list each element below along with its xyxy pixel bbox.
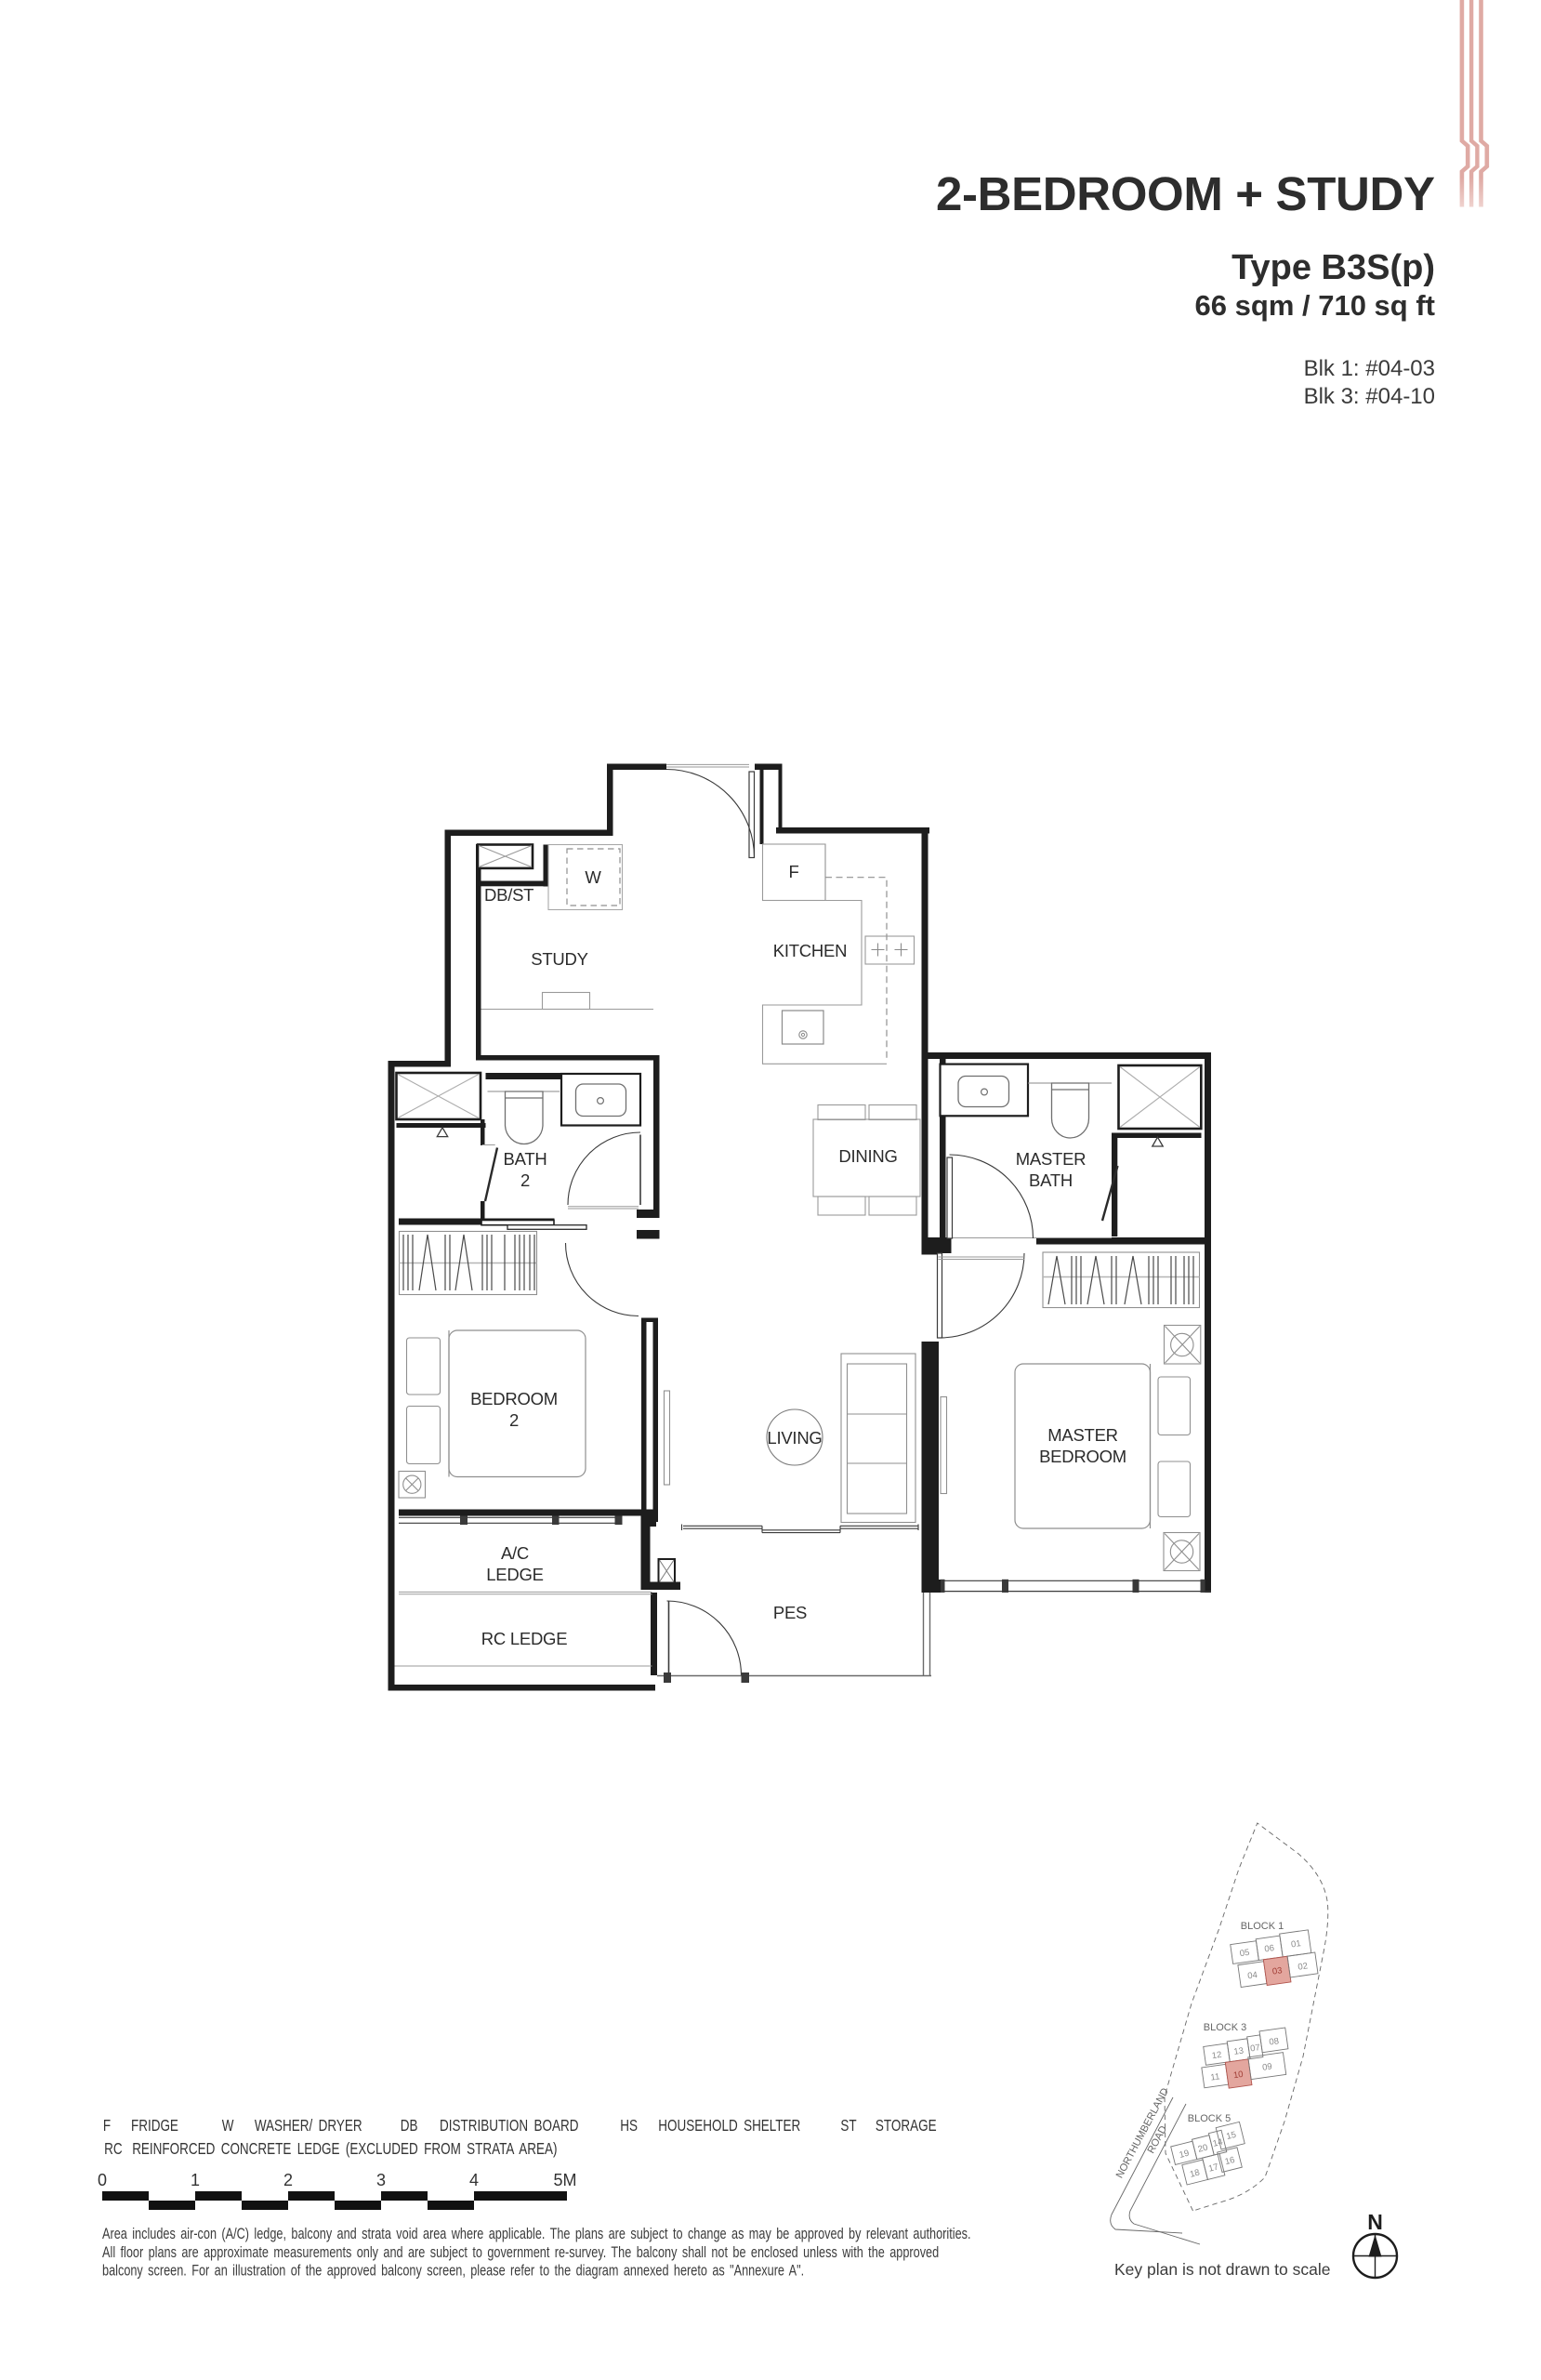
svg-text:2: 2	[509, 1410, 519, 1430]
svg-text:13: 13	[1233, 2046, 1245, 2057]
svg-text:W: W	[222, 2117, 234, 2135]
svg-text:Type B3S(p): Type B3S(p)	[1231, 248, 1435, 287]
svg-text:RC LEDGE: RC LEDGE	[481, 1629, 568, 1648]
svg-text:07: 07	[1250, 2043, 1261, 2054]
svg-text:BEDROOM: BEDROOM	[1039, 1447, 1126, 1466]
svg-text:BLOCK 5: BLOCK 5	[1188, 2113, 1231, 2124]
svg-text:STUDY: STUDY	[531, 949, 587, 969]
svg-text:1: 1	[191, 2171, 200, 2189]
svg-text:PES: PES	[773, 1603, 807, 1622]
svg-text:12: 12	[1211, 2050, 1222, 2061]
svg-text:2: 2	[520, 1170, 530, 1190]
svg-text:08: 08	[1269, 2036, 1280, 2047]
svg-text:LIVING: LIVING	[767, 1428, 822, 1448]
svg-text:DISTRIBUTION BOARD: DISTRIBUTION BOARD	[440, 2117, 578, 2135]
svg-text:DINING: DINING	[838, 1146, 897, 1166]
svg-text:03: 03	[1271, 1965, 1283, 1977]
svg-text:REINFORCED CONCRETE LEDGE (EXC: REINFORCED CONCRETE LEDGE (EXCLUDED FROM…	[132, 2140, 557, 2158]
svg-text:DB/ST: DB/ST	[484, 885, 533, 905]
svg-text:MASTER: MASTER	[1016, 1149, 1087, 1169]
svg-text:FRIDGE: FRIDGE	[131, 2117, 178, 2135]
svg-text:BATH: BATH	[1029, 1170, 1073, 1190]
svg-text:BLOCK 3: BLOCK 3	[1204, 2022, 1246, 2033]
svg-text:RC: RC	[104, 2140, 122, 2158]
svg-text:MASTER: MASTER	[1047, 1425, 1118, 1445]
svg-text:4: 4	[469, 2171, 479, 2189]
svg-text:05: 05	[1239, 1948, 1250, 1959]
svg-text:04: 04	[1247, 1970, 1258, 1981]
svg-text:3: 3	[376, 2171, 386, 2189]
svg-text:Area includes air-con (A/C) le: Area includes air-con (A/C) ledge, balco…	[102, 2225, 970, 2242]
svg-text:F: F	[788, 862, 798, 881]
svg-text:5M: 5M	[553, 2171, 576, 2189]
svg-text:66 sqm / 710 sq ft: 66 sqm / 710 sq ft	[1195, 289, 1435, 322]
svg-text:KITCHEN: KITCHEN	[773, 941, 847, 960]
svg-text:09: 09	[1261, 2061, 1272, 2072]
svg-text:HS: HS	[620, 2117, 638, 2135]
svg-text:ST: ST	[840, 2117, 856, 2135]
svg-text:BATH: BATH	[504, 1149, 547, 1169]
svg-text:WASHER/ DRYER: WASHER/ DRYER	[255, 2117, 362, 2135]
svg-text:W: W	[585, 867, 601, 887]
svg-text:A/C: A/C	[501, 1543, 529, 1563]
svg-text:Blk 1: #04-03: Blk 1: #04-03	[1304, 356, 1435, 381]
svg-text:BLOCK 1: BLOCK 1	[1241, 1921, 1284, 1932]
svg-text:HOUSEHOLD SHELTER: HOUSEHOLD SHELTER	[658, 2117, 800, 2135]
svg-text:STORAGE: STORAGE	[876, 2117, 937, 2135]
svg-text:Key plan is not drawn to scale: Key plan is not drawn to scale	[1114, 2260, 1331, 2279]
svg-text:N: N	[1367, 2210, 1383, 2234]
svg-text:BEDROOM: BEDROOM	[470, 1389, 558, 1408]
svg-text:2: 2	[283, 2171, 293, 2189]
svg-text:11: 11	[1210, 2071, 1220, 2082]
svg-text:LEDGE: LEDGE	[486, 1565, 543, 1584]
svg-text:Blk 3: #04-10: Blk 3: #04-10	[1304, 384, 1435, 409]
svg-text:balcony screen. For an illustr: balcony screen. For an illustration of t…	[102, 2262, 804, 2280]
svg-text:2-BEDROOM + STUDY: 2-BEDROOM + STUDY	[936, 167, 1435, 220]
svg-text:01: 01	[1290, 1938, 1301, 1950]
svg-text:10: 10	[1232, 2069, 1244, 2081]
svg-text:F: F	[103, 2117, 111, 2135]
svg-text:02: 02	[1297, 1961, 1309, 1972]
svg-text:All floor plans are approximat: All floor plans are approximate measurem…	[102, 2243, 939, 2261]
svg-text:06: 06	[1264, 1943, 1275, 1954]
svg-text:DB: DB	[401, 2117, 418, 2135]
svg-text:0: 0	[98, 2171, 107, 2189]
